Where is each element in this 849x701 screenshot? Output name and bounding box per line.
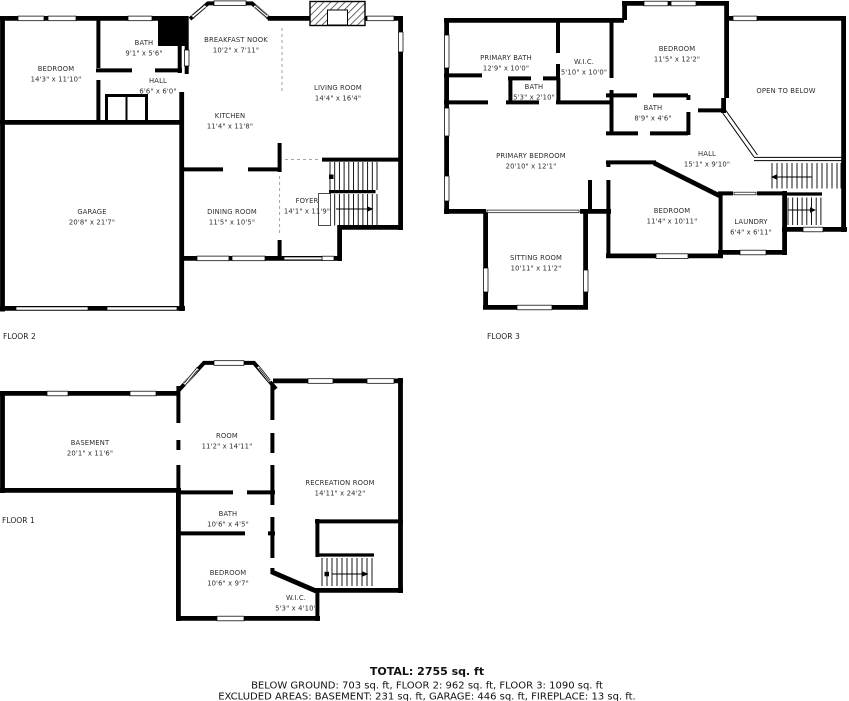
room-dims-bedroom1: 10'6" x 9'7"	[207, 580, 249, 588]
room-label-bath1: BATH	[219, 510, 238, 518]
room-dims-sitting-room: 10'11" x 11'2"	[511, 265, 562, 273]
floor-3-plan: PRIMARY BATH 12'9" x 10'0" W.I.C. 5'10" …	[444, 1, 847, 341]
room-label-recreation-room: RECREATION ROOM	[305, 479, 374, 487]
laundry-door	[734, 192, 756, 195]
garage-door	[107, 307, 177, 310]
room-label-bedroom: BEDROOM	[38, 65, 75, 73]
room-dims-mid-bath: 8'9" x 4'6"	[634, 115, 671, 123]
room-label-bedroom1: BEDROOM	[210, 569, 247, 577]
room-dims-garage: 20'8" x 21'7"	[69, 219, 115, 227]
room-label-sitting-room: SITTING ROOM	[510, 254, 562, 262]
room-dims-primary-bedroom: 20'10" x 12'1"	[506, 163, 557, 171]
room-dims-bedroom-bottom: 11'4" x 10'11"	[647, 218, 698, 226]
room-dims-hall3: 15'1" x 9'10"	[684, 161, 730, 169]
room-label-bath: BATH	[135, 39, 154, 47]
room-label-hall: HALL	[149, 77, 167, 85]
room-dims-primary-bath: 12'9" x 10'0"	[483, 65, 529, 73]
floor-2-windows	[16, 1, 403, 310]
room-label-open-to-below: OPEN TO BELOW	[756, 87, 815, 95]
floor-1-plan: BASEMENT 20'1" x 11'6" ROOM 11'2" x 14'1…	[0, 361, 403, 621]
room-dims-bath1: 10'6" x 4'5"	[207, 521, 249, 529]
room-dims-living-room: 14'4" x 16'4"	[315, 95, 361, 103]
room-dims-dining-room: 11'5" x 10'5"	[209, 219, 255, 227]
open-to-below-railing	[722, 110, 843, 161]
room-label-wic1: W.I.C.	[286, 594, 306, 602]
room-label-foyer: FOYER	[296, 197, 319, 205]
room-label-dining-room: DINING ROOM	[207, 208, 257, 216]
floor-1-tag: FLOOR 1	[2, 516, 35, 525]
room-label-room: ROOM	[216, 432, 238, 440]
room-label-laundry: LAUNDRY	[734, 218, 768, 226]
fireplace	[310, 2, 365, 26]
floorplan-canvas: BEDROOM 14'3" x 11'10" BATH 9'1" x 5'6" …	[0, 0, 849, 701]
floor-2-plan: BEDROOM 14'3" x 11'10" BATH 9'1" x 5'6" …	[0, 1, 403, 341]
room-label-wic: W.I.C.	[574, 58, 594, 66]
room-label-bedroom-top: BEDROOM	[659, 45, 696, 53]
room-label-basement: BASEMENT	[71, 439, 110, 447]
room-dims-basement: 20'1" x 11'6"	[67, 450, 113, 458]
room-dims-hall: 6'6" x 6'0"	[139, 88, 176, 96]
room-label-primary-bedroom: PRIMARY BEDROOM	[496, 152, 566, 160]
room-label-breakfast-nook: BREAKFAST NOOK	[204, 36, 268, 44]
floor-2-walls	[0, 3, 403, 311]
room-label-kitchen: KITCHEN	[215, 112, 246, 120]
room-label-mid-bath: BATH	[644, 104, 663, 112]
room-dims-breakfast-nook: 10'2" x 7'11"	[213, 47, 259, 55]
floor-2-stairs	[319, 162, 378, 226]
room-dims-bedroom-top: 11'5" x 12'2"	[654, 56, 700, 64]
floor-2-tag: FLOOR 2	[3, 332, 36, 341]
summary-excluded: EXCLUDED AREAS: BASEMENT: 231 sq. ft, GA…	[218, 692, 636, 701]
room-dims-room: 11'2" x 14'11"	[202, 443, 253, 451]
room-dims-bath: 9'1" x 5'6"	[125, 50, 162, 58]
chimney-block	[158, 16, 186, 46]
room-label-bedroom-bottom: BEDROOM	[654, 207, 691, 215]
cased-opening	[487, 210, 579, 213]
room-dims-bedroom: 14'3" x 11'10"	[31, 76, 82, 84]
room-label-living-room: LIVING ROOM	[314, 84, 362, 92]
room-dims-small-bath: 5'3" x 2'10"	[513, 94, 555, 102]
garage-door	[16, 307, 88, 310]
summary-total: TOTAL: 2755 sq. ft	[370, 665, 484, 678]
room-label-hall3: HALL	[698, 150, 716, 158]
floor-1-stairs	[322, 558, 372, 586]
room-label-small-bath: BATH	[525, 83, 544, 91]
room-label-garage: GARAGE	[77, 208, 106, 216]
room-dims-wic1: 5'3" x 4'10"	[275, 605, 317, 613]
room-dims-foyer: 14'1" x 11'9"	[284, 208, 330, 216]
area-summary: TOTAL: 2755 sq. ft BELOW GROUND: 703 sq.…	[218, 665, 636, 701]
room-label-primary-bath: PRIMARY BATH	[480, 54, 532, 62]
room-dims-recreation-room: 14'11" x 24'2"	[315, 490, 366, 498]
room-dims-wic: 5'10" x 10'0"	[561, 69, 607, 77]
front-door	[284, 257, 322, 260]
summary-by-floor: BELOW GROUND: 703 sq. ft, FLOOR 2: 962 s…	[251, 681, 603, 692]
room-dims-laundry: 6'4" x 6'11"	[730, 229, 772, 237]
floor-3-tag: FLOOR 3	[487, 332, 520, 341]
room-dims-kitchen: 11'4" x 11'8"	[207, 123, 253, 131]
